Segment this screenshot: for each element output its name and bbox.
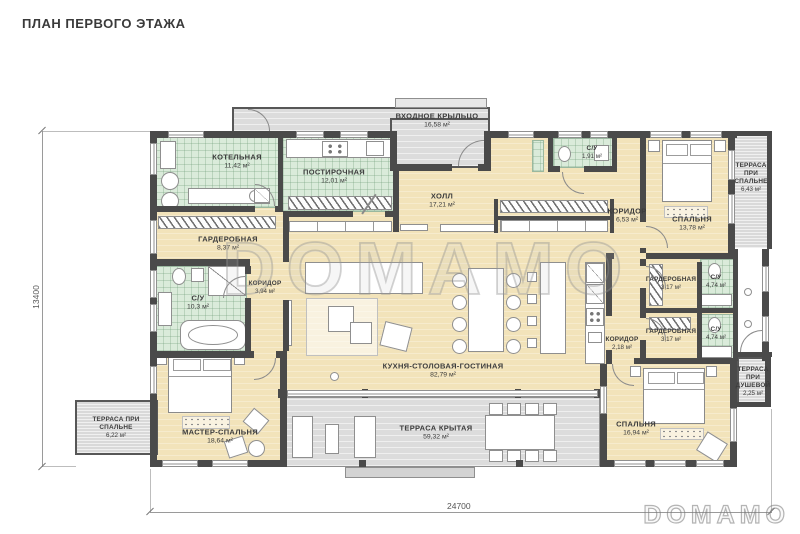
- window: [730, 408, 737, 442]
- dimension-label-bottom: 24700: [447, 501, 471, 511]
- nightstand: [648, 140, 660, 152]
- hall-cabinet: [532, 140, 544, 172]
- wall: [697, 262, 702, 308]
- stove-icon: [322, 141, 348, 157]
- porch-step: [395, 98, 487, 108]
- sliding-glass-wall: [287, 390, 598, 397]
- room-label-boiler: КОТЕЛЬНАЯ11,42 м²: [212, 153, 262, 172]
- pillow: [203, 359, 231, 371]
- page-title: ПЛАН ПЕРВОГО ЭТАЖА: [22, 16, 186, 31]
- window: [150, 366, 157, 394]
- radiator-mark: [744, 288, 752, 296]
- wall: [150, 206, 255, 212]
- extension-line: [43, 466, 76, 467]
- window: [590, 131, 608, 138]
- wall: [737, 402, 771, 407]
- wall: [498, 216, 610, 220]
- dimension-line-left: [42, 131, 43, 467]
- outdoor-chair: [525, 403, 539, 415]
- chair: [452, 317, 467, 332]
- vanity-left: [158, 292, 172, 326]
- bidet-left: [191, 268, 204, 282]
- terrace-post: [516, 460, 523, 467]
- outdoor-chair: [543, 450, 557, 462]
- brand-logo: DOMAMO: [643, 501, 790, 530]
- wall: [280, 351, 287, 467]
- wall: [548, 166, 560, 172]
- window: [614, 460, 646, 467]
- window: [762, 316, 769, 342]
- lounge-chair: [354, 416, 376, 458]
- outdoor-dining-table: [485, 415, 555, 450]
- window: [150, 220, 157, 254]
- pillow: [173, 359, 201, 371]
- wall: [646, 308, 733, 313]
- wc-counter: [701, 294, 732, 306]
- room-label-corridor-3: КОРИДОР2,18 м²: [604, 336, 640, 352]
- window: [690, 131, 722, 138]
- nightstand: [706, 366, 717, 377]
- chair: [452, 339, 467, 354]
- wall: [150, 131, 157, 467]
- terrace-step: [345, 467, 475, 478]
- room-label-corridor: КОРИДОР6,53 м²: [604, 207, 650, 226]
- wall: [390, 164, 452, 171]
- room-label-wc-2: С/У4,74 м²: [706, 326, 726, 342]
- lounge-chair: [292, 416, 313, 458]
- toilet-small: [558, 146, 571, 162]
- watermark: DOMAMO: [222, 226, 633, 311]
- stool: [527, 316, 537, 326]
- wall: [150, 351, 254, 358]
- wall: [612, 138, 617, 172]
- wc-counter: [701, 346, 732, 358]
- window: [650, 131, 682, 138]
- window: [340, 131, 368, 138]
- room-label-terrace-shower: ТЕРРАСА ПРИ ДУШЕВОЙ2,25 м²: [731, 366, 775, 398]
- boiler-unit: [160, 141, 176, 169]
- kitchen-sink: [588, 332, 602, 343]
- laundry-sink: [366, 141, 384, 156]
- room-label-terrace-covered: ТЕРРАСА КРЫТАЯ59,32 м²: [400, 424, 473, 443]
- bed-top-right: [662, 140, 712, 202]
- window: [762, 266, 769, 292]
- outdoor-chair: [489, 403, 503, 415]
- laundry-closet: [288, 196, 392, 210]
- room-label-porch: ВХОДНОЕ КРЫЛЬЦО16,58 м²: [396, 112, 479, 131]
- nightstand: [714, 140, 726, 152]
- pillow: [648, 372, 675, 384]
- window: [508, 131, 534, 138]
- stool: [527, 338, 537, 348]
- room-label-bathroom-left: С/У10,3 м²: [187, 294, 209, 313]
- window: [212, 460, 248, 467]
- wall: [600, 364, 607, 467]
- wall: [733, 249, 738, 361]
- extension-line: [771, 409, 772, 513]
- extension-line: [43, 131, 150, 132]
- window: [150, 270, 157, 298]
- rug: [660, 428, 704, 440]
- room-label-bedroom-2: СПАЛЬНЯ16,94 м²: [616, 420, 656, 439]
- radiator-mark: [744, 320, 752, 328]
- glazing-post: [278, 389, 287, 398]
- outdoor-chair: [507, 403, 521, 415]
- window: [162, 460, 198, 467]
- window: [558, 131, 582, 138]
- window: [150, 304, 157, 332]
- pillow: [666, 144, 688, 156]
- chair: [506, 317, 521, 332]
- floor-plan: ПЛАН ПЕРВОГО ЭТАЖА: [0, 0, 800, 534]
- wall: [283, 211, 353, 217]
- window: [728, 194, 735, 224]
- room-label-bedroom-1: СПАЛЬНЯ13,78 м²: [672, 215, 712, 234]
- wall: [697, 313, 702, 361]
- floor-lamp: [330, 372, 339, 381]
- extension-line: [150, 469, 151, 513]
- room-label-master: МАСТЕР-СПАЛЬНЯ18,64 м²: [182, 428, 258, 447]
- room-label-laundry: ПОСТИРОЧНАЯ12,01 м²: [303, 168, 365, 187]
- window: [296, 131, 324, 138]
- wall: [278, 138, 283, 208]
- dimension-label-left: 13400: [31, 285, 41, 309]
- wall: [640, 259, 646, 266]
- room-label-wc-small: С/У1,91 м²: [582, 145, 602, 161]
- room-label-walkin-2: ГАРДЕРОБНАЯ3,17 м²: [645, 328, 697, 344]
- washer: [161, 172, 179, 190]
- pillow: [677, 372, 704, 384]
- wall: [634, 358, 733, 364]
- bed-bottom-right: [643, 368, 705, 424]
- chair: [506, 339, 521, 354]
- window: [696, 460, 724, 467]
- room-label-terrace-master: ТЕРРАСА ПРИ СПАЛЬНЕ6,22 м²: [83, 416, 149, 440]
- room-label-walkin-1: ГАРДЕРОБНАЯ3,17 м²: [645, 276, 697, 292]
- outdoor-chair: [489, 450, 503, 462]
- wall: [640, 288, 646, 318]
- master-bed: [168, 355, 232, 413]
- blanket-line: [663, 163, 711, 164]
- toilet-left: [172, 268, 186, 285]
- bathtub-basin: [188, 325, 238, 345]
- terrace-post: [359, 460, 366, 467]
- outdoor-chair: [543, 403, 557, 415]
- blanket-line: [169, 376, 231, 377]
- hall-closet: [500, 200, 608, 213]
- outdoor-chair: [525, 450, 539, 462]
- window: [654, 460, 686, 467]
- wall: [646, 253, 733, 259]
- room-label-hall: ХОЛЛ17,21 м²: [429, 192, 455, 211]
- room-label-kitchen-living: КУХНЯ-СТОЛОВАЯ-ГОСТИНАЯ82,79 м²: [383, 362, 504, 381]
- window: [150, 143, 157, 175]
- window: [168, 131, 204, 138]
- wall: [393, 171, 399, 232]
- pillow: [690, 144, 712, 156]
- coffee-table: [350, 322, 372, 344]
- window: [600, 386, 607, 414]
- blanket-line: [644, 389, 704, 390]
- wall: [275, 206, 283, 212]
- room-label-terrace-bedroom-right: ТЕРРАСА ПРИ СПАЛЬНЕ6,43 м²: [730, 162, 772, 194]
- room-label-wc-1: С/У4,74 м²: [706, 274, 726, 290]
- outdoor-table: [325, 424, 339, 454]
